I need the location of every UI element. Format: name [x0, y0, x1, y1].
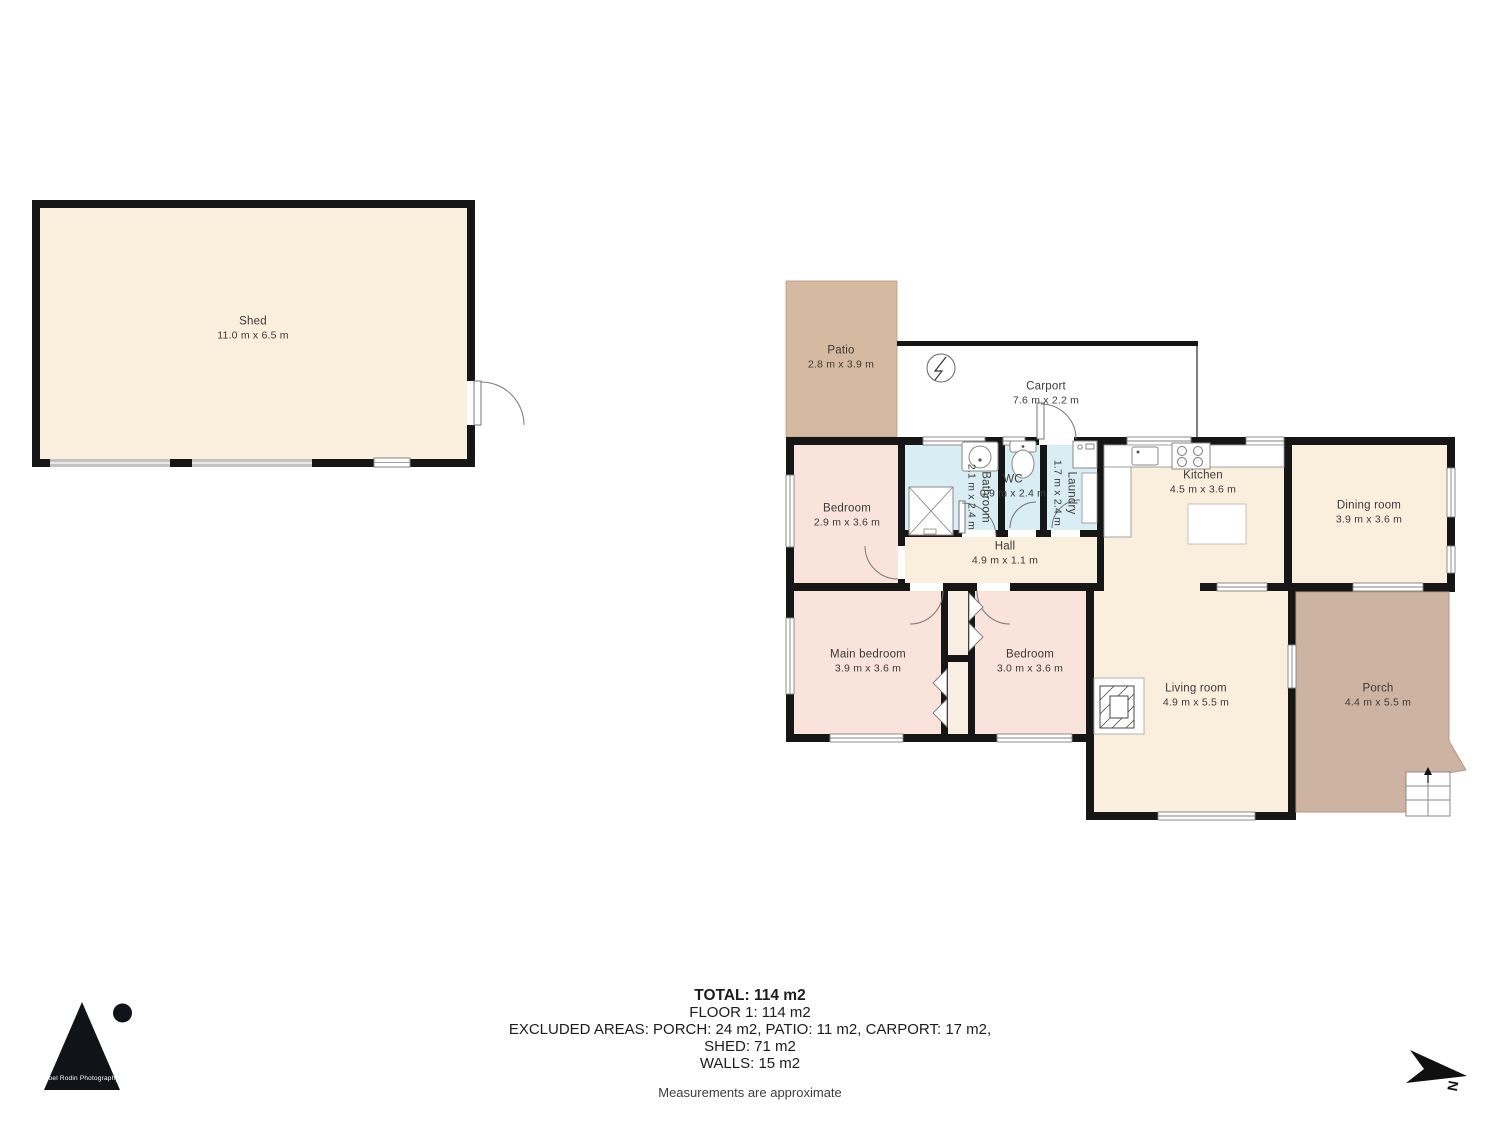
room-label-hall: Hall 4.9 m x 1.1 m	[972, 539, 1038, 568]
floorplan-drawing	[0, 0, 1500, 1125]
closet-floor	[948, 591, 968, 734]
shower-icon	[909, 487, 953, 535]
room-label-bedroom-top: Bedroom 2.9 m x 3.6 m	[814, 501, 880, 530]
room-label-kitchen: Kitchen 4.5 m x 3.6 m	[1170, 468, 1236, 497]
summary-note: Measurements are approximate	[0, 1084, 1500, 1101]
summary-total: TOTAL: 114 m2	[0, 987, 1500, 1004]
kitchen-sink-icon	[1132, 447, 1158, 465]
room-label-main-bedroom: Main bedroom 3.9 m x 3.6 m	[830, 647, 906, 676]
floorplan-canvas: Shed 11.0 m x 6.5 m Patio 2.8 m x 3.9 m …	[0, 0, 1500, 1125]
logo-caption: Joel Rodin Photography	[36, 1075, 128, 1082]
stove-icon	[1172, 443, 1210, 469]
closet-divider-wall	[948, 655, 968, 662]
shed-door-arc	[481, 382, 524, 425]
room-label-porch: Porch 4.4 m x 5.5 m	[1345, 681, 1411, 710]
room-label-living: Living room 4.9 m x 5.5 m	[1163, 681, 1229, 710]
kitchen-living-opening	[1104, 583, 1200, 591]
summary-floor: FLOOR 1: 114 m2	[0, 1004, 1500, 1021]
summary-walls: WALLS: 15 m2	[0, 1055, 1500, 1072]
room-label-laundry: Laundry 1.7 m x 2.4 m	[1049, 460, 1078, 526]
room-label-bedroom-2: Bedroom 3.0 m x 3.6 m	[997, 647, 1063, 676]
room-label-shed: Shed 11.0 m x 6.5 m	[217, 314, 288, 343]
room-label-dining: Dining room 3.9 m x 3.6 m	[1336, 498, 1402, 527]
room-label-carport: Carport 7.6 m x 2.2 m	[1013, 379, 1079, 408]
summary-excluded: EXCLUDED AREAS: PORCH: 24 m2, PATIO: 11 …	[0, 1021, 1500, 1038]
room-label-patio: Patio 2.8 m x 3.9 m	[808, 343, 874, 372]
kitchen-island	[1188, 504, 1246, 544]
porch-stairs-icon	[1406, 767, 1450, 816]
fireplace-icon	[1094, 678, 1144, 734]
electrical-meter-icon	[927, 354, 955, 382]
room-label-wc: WC 0.9 m x 2.4 m	[980, 472, 1046, 501]
summary-shed: SHED: 71 m2	[0, 1038, 1500, 1055]
summary-block: TOTAL: 114 m2 FLOOR 1: 114 m2 EXCLUDED A…	[0, 987, 1500, 1101]
shed-door-leaf	[474, 381, 481, 425]
